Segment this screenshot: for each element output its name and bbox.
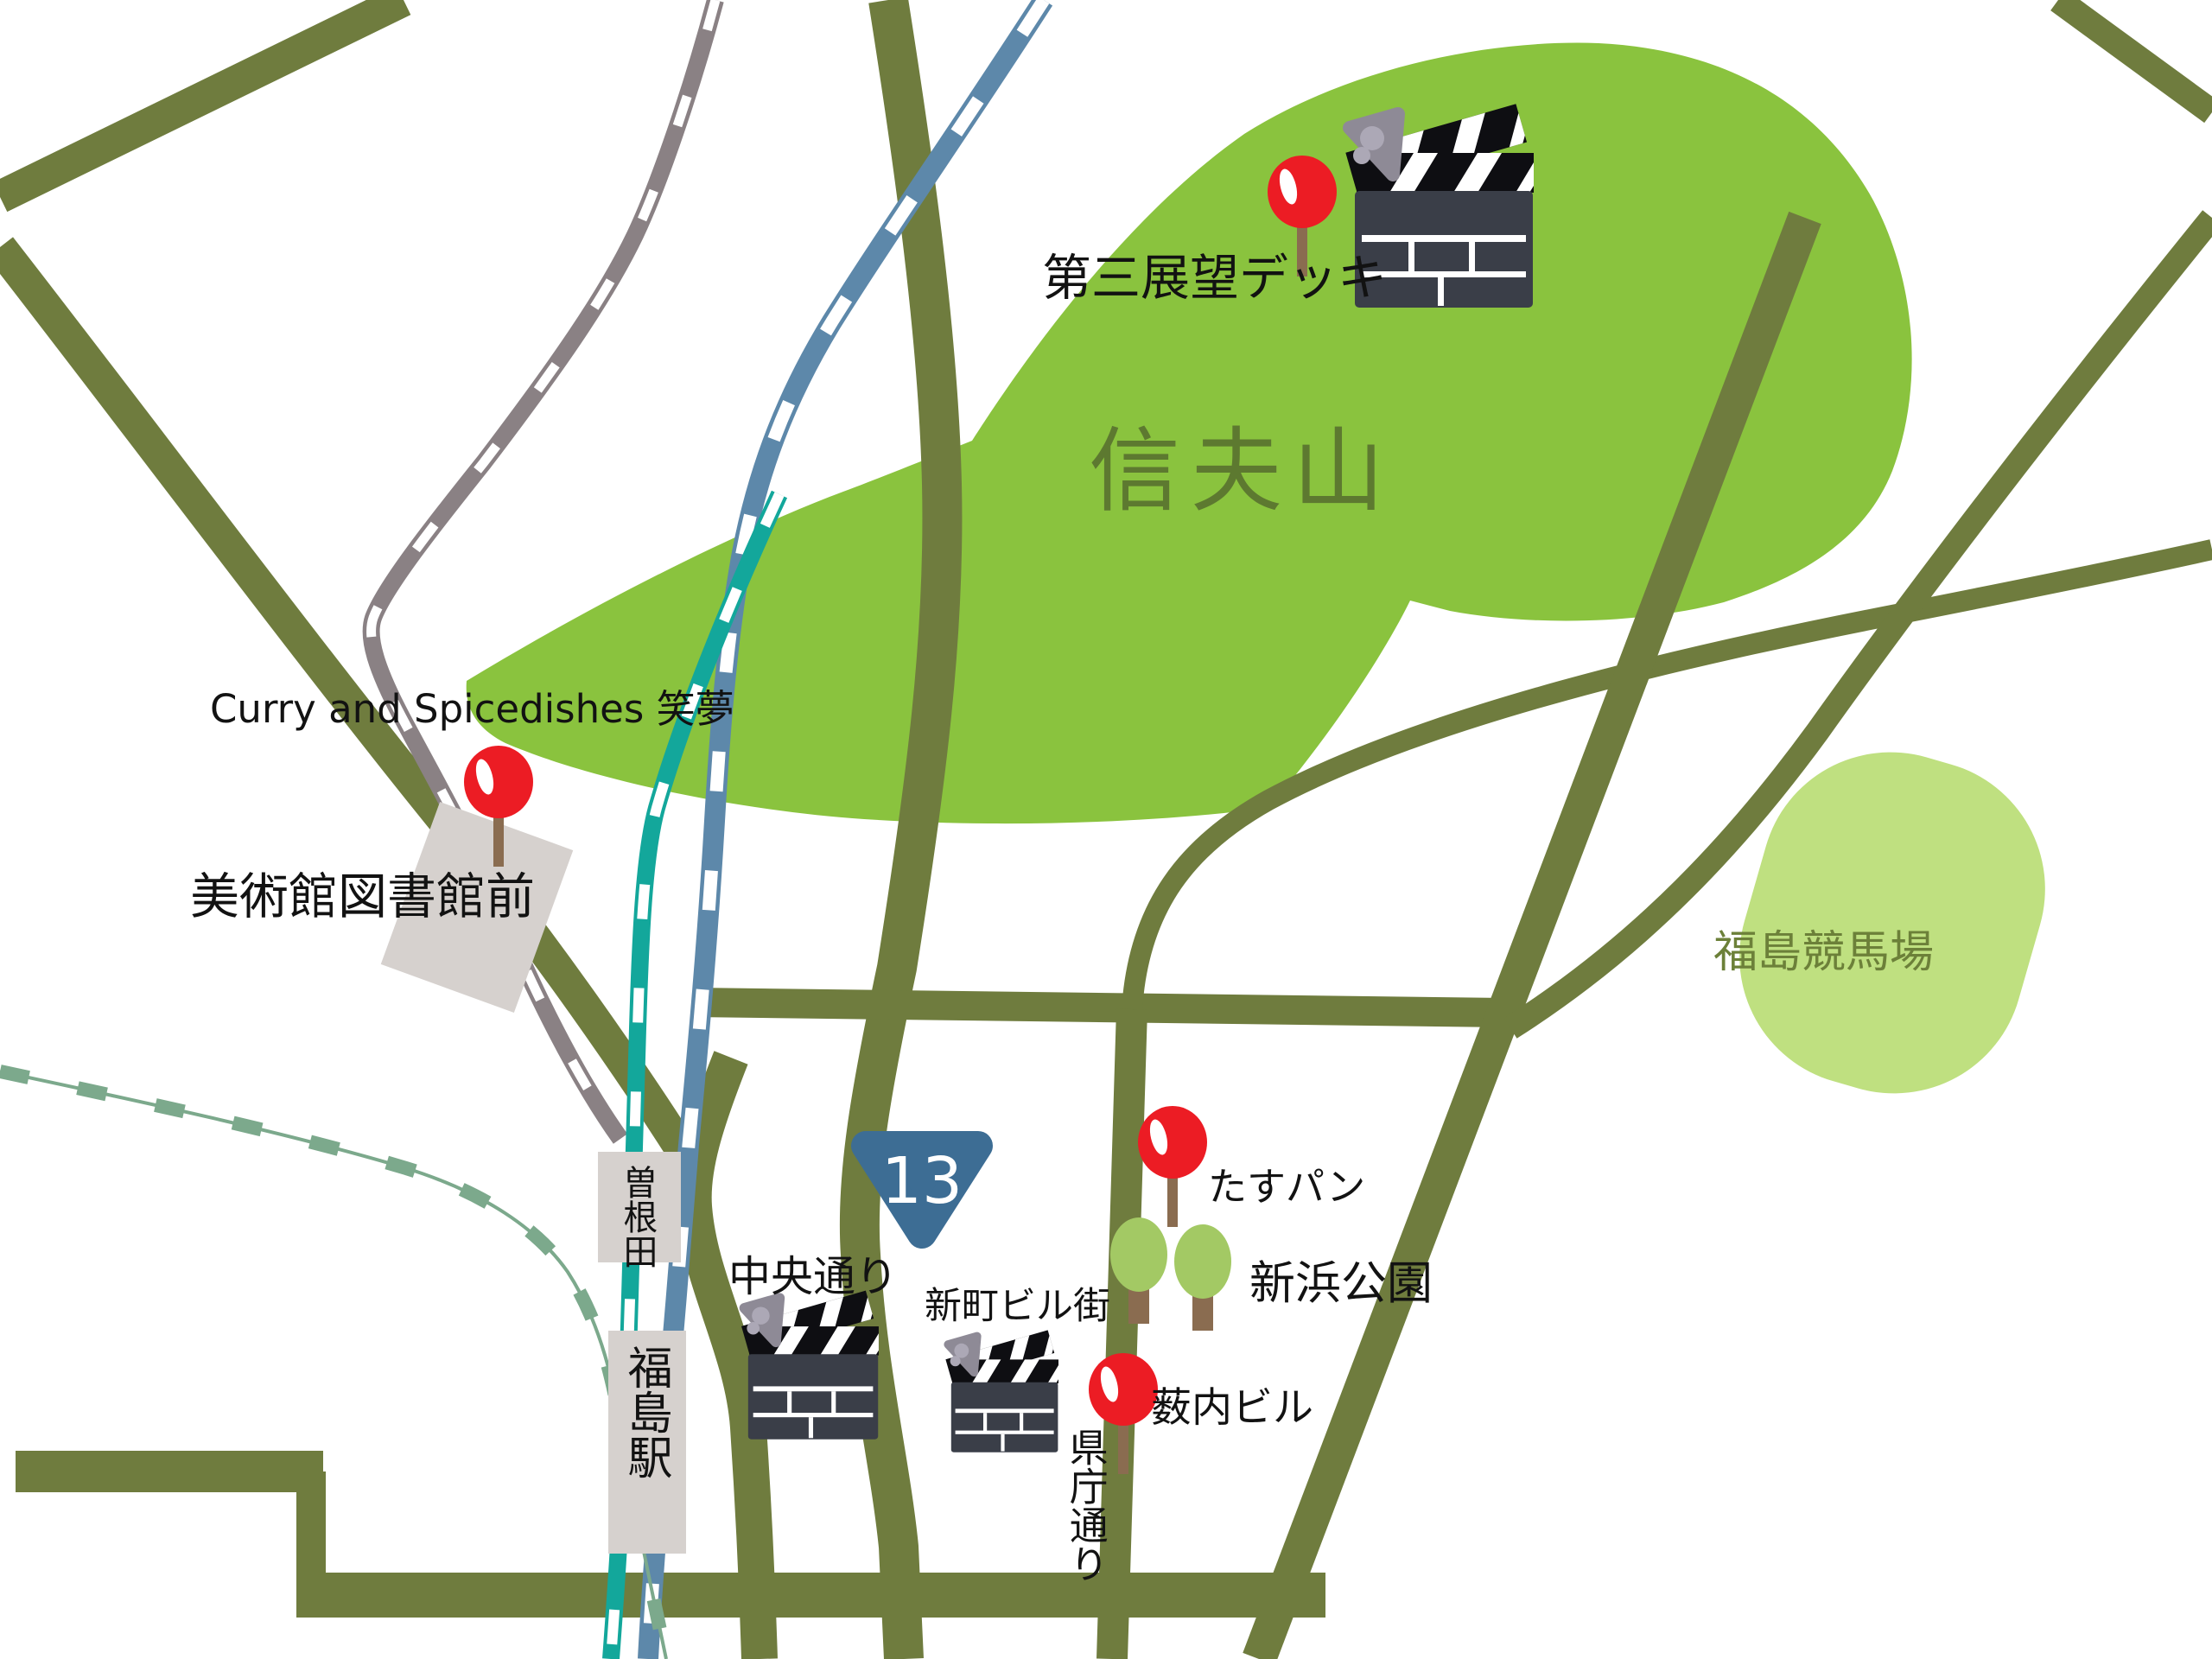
fukushima-station-label: 福島駅 <box>621 1344 669 1479</box>
tasu-pan-label: たすパン <box>1208 1166 1365 1208</box>
illustrated-city-map: 第三展望デッキ 信夫山 Curry and Spicedishes 笑夢 美術館… <box>0 0 2212 1659</box>
road-top-left <box>0 0 404 197</box>
kencho-street-label: 県庁通り <box>1065 1427 1106 1583</box>
clapperboard-icon-chuo-street <box>741 1291 879 1440</box>
museum-library-station-label: 美術館図書館前 <box>190 871 535 923</box>
tree-icon <box>1174 1224 1231 1331</box>
chuo-street-label: 中央通り <box>728 1255 898 1300</box>
observation-deck-label: 第三展望デッキ <box>1042 252 1387 304</box>
mountain-label: 信夫山 <box>1089 423 1395 520</box>
railway-sage-dashes <box>0 1071 666 1659</box>
yabuuchi-building-label: 薮内ビル <box>1151 1387 1313 1430</box>
map-artwork <box>0 0 2212 1659</box>
road-top-right-corner <box>2058 0 2212 112</box>
road-east-horizontal <box>694 1002 1505 1013</box>
shinmachi-street-label: 新町ビル街 <box>925 1287 1110 1327</box>
racecourse-label: 福島競馬場 <box>1713 930 1934 976</box>
route-13-number: 13 <box>867 1147 977 1215</box>
road-kencho-dori <box>1112 1009 1132 1659</box>
clapperboard-icon-shinmachi <box>945 1330 1058 1452</box>
soneda-station-label: 曽根田 <box>619 1165 655 1268</box>
curry-shop-label: Curry and Spicedishes 笑夢 <box>210 689 734 730</box>
shinhama-park-label: 新浜公園 <box>1249 1260 1433 1308</box>
red-pin-icon-tasu-pan <box>1138 1106 1207 1227</box>
railway-sage-line <box>0 1071 666 1659</box>
